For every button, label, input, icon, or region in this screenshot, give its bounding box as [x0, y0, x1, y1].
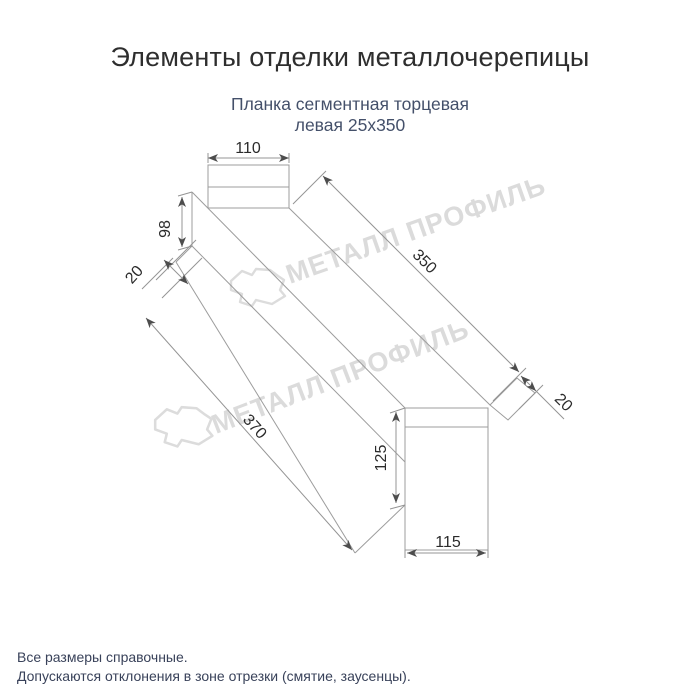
product-subtitle: Планка сегментная торцевая левая 25х350	[0, 94, 700, 136]
dimension-98-label: 98	[157, 220, 174, 238]
dimension-20-left-label: 20	[122, 263, 147, 288]
dimension-20-right-label: 20	[551, 391, 576, 416]
dimension-125-label: 125	[373, 445, 390, 472]
dimension-115-label: 115	[435, 534, 461, 551]
footer-notes: Все размеры справочные. Допускаются откл…	[17, 648, 411, 686]
page-title: Элементы отделки металлочерепицы	[0, 42, 700, 73]
catalog-page: МЕТАЛЛ ПРОФИЛЬ МЕТАЛЛ ПРОФИЛЬ	[0, 0, 700, 700]
product-name-line1: Планка сегментная торцевая	[0, 94, 700, 115]
dimension-110-label: 110	[235, 140, 261, 157]
watermark-text: МЕТАЛЛ ПРОФИЛЬ	[282, 170, 550, 290]
dimension-350-label: 350	[409, 246, 440, 277]
footer-note-line2: Допускаются отклонения в зоне отрезки (с…	[17, 667, 411, 686]
product-name-line2: левая 25х350	[0, 115, 700, 136]
footer-note-line1: Все размеры справочные.	[17, 648, 411, 667]
